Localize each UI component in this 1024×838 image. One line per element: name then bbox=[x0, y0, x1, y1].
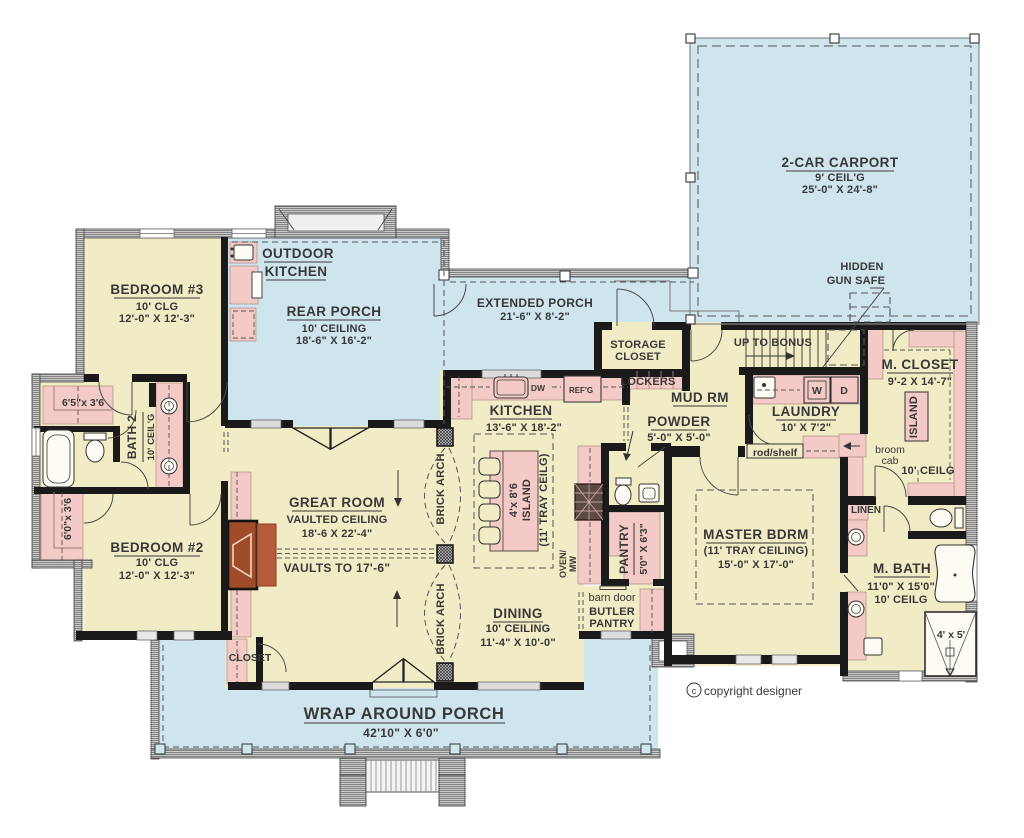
svg-text:CLOSET: CLOSET bbox=[615, 351, 661, 363]
svg-text:OUTDOOR: OUTDOOR bbox=[262, 246, 334, 261]
svg-text:25'-0" X 24'-8": 25'-0" X 24'-8" bbox=[802, 184, 878, 196]
svg-text:(11' TRAY CEILG): (11' TRAY CEILG) bbox=[538, 453, 550, 546]
svg-text:PANTRY: PANTRY bbox=[617, 524, 631, 574]
svg-text:13'-6" X 18'-2": 13'-6" X 18'-2" bbox=[486, 422, 562, 434]
svg-text:4' x 5': 4' x 5' bbox=[937, 629, 965, 641]
svg-text:GREAT ROOM: GREAT ROOM bbox=[289, 495, 385, 510]
svg-text:barn door: barn door bbox=[588, 592, 635, 604]
svg-text:6'0"x 3'6: 6'0"x 3'6 bbox=[62, 498, 74, 540]
svg-text:rod/shelf: rod/shelf bbox=[753, 447, 798, 459]
svg-text:W: W bbox=[812, 385, 822, 397]
svg-text:BUTLER: BUTLER bbox=[589, 606, 635, 618]
svg-text:BATH 2: BATH 2 bbox=[125, 415, 139, 459]
svg-text:M. BATH: M. BATH bbox=[873, 561, 931, 576]
svg-text:GUN SAFE: GUN SAFE bbox=[827, 275, 885, 287]
svg-text:10' CEILING: 10' CEILING bbox=[486, 623, 551, 635]
svg-text:LOCKERS: LOCKERS bbox=[620, 376, 675, 388]
svg-text:10' CEILG: 10' CEILG bbox=[874, 594, 927, 606]
svg-text:10' X 7'2": 10' X 7'2" bbox=[781, 422, 831, 434]
svg-text:REF'G: REF'G bbox=[569, 386, 593, 395]
svg-text:10' CLG: 10' CLG bbox=[136, 301, 179, 313]
svg-text:LAUNDRY: LAUNDRY bbox=[772, 404, 840, 419]
svg-text:9' CEIL'G: 9' CEIL'G bbox=[815, 172, 865, 184]
svg-text:VAULTS TO 17'-6": VAULTS TO 17'-6" bbox=[284, 561, 391, 575]
svg-text:11'0" X 15'0": 11'0" X 15'0" bbox=[867, 581, 935, 593]
svg-text:ISLAND: ISLAND bbox=[521, 479, 533, 521]
svg-text:WRAP AROUND PORCH: WRAP AROUND PORCH bbox=[304, 705, 505, 723]
svg-text:2-CAR CARPORT: 2-CAR CARPORT bbox=[782, 155, 899, 170]
svg-text:10' CEIL'G: 10' CEIL'G bbox=[146, 414, 157, 461]
svg-text:cab: cab bbox=[882, 455, 899, 467]
svg-text:D: D bbox=[840, 385, 848, 397]
svg-text:21'-6" X 8'-2": 21'-6" X 8'-2" bbox=[500, 311, 570, 323]
svg-text:PANTRY: PANTRY bbox=[589, 618, 635, 630]
svg-text:18'-6 X 22'-4": 18'-6 X 22'-4" bbox=[302, 528, 373, 540]
svg-text:POWDER: POWDER bbox=[647, 414, 710, 429]
svg-text:10' CEILG: 10' CEILG bbox=[901, 465, 954, 477]
svg-text:18'-6" X 16'-2": 18'-6" X 16'-2" bbox=[296, 335, 372, 347]
svg-text:EXTENDED PORCH: EXTENDED PORCH bbox=[477, 296, 593, 310]
svg-text:4'x 8'6: 4'x 8'6 bbox=[508, 483, 520, 517]
svg-text:M. CLOSET: M. CLOSET bbox=[881, 357, 958, 372]
svg-text:STORAGE: STORAGE bbox=[610, 339, 666, 351]
svg-text:12'-0" X 12'-3": 12'-0" X 12'-3" bbox=[119, 313, 195, 325]
svg-text:11'-4" X 10'-0": 11'-4" X 10'-0" bbox=[480, 637, 556, 649]
svg-text:42'10" X 6'0": 42'10" X 6'0" bbox=[363, 726, 439, 740]
svg-text:HIDDEN: HIDDEN bbox=[840, 261, 883, 273]
svg-text:REAR PORCH: REAR PORCH bbox=[287, 304, 382, 319]
svg-text:MASTER BDRM: MASTER BDRM bbox=[703, 527, 809, 542]
svg-text:15'-0" X 17'-0": 15'-0" X 17'-0" bbox=[718, 559, 794, 571]
svg-text:copyright designer: copyright designer bbox=[704, 684, 802, 698]
svg-text:KITCHEN: KITCHEN bbox=[490, 403, 553, 418]
svg-text:VAULTED CEILING: VAULTED CEILING bbox=[287, 514, 388, 526]
svg-text:LINEN: LINEN bbox=[851, 505, 881, 516]
svg-text:10' CEILING: 10' CEILING bbox=[302, 323, 367, 335]
svg-text:MW: MW bbox=[568, 556, 578, 572]
svg-text:5'-0" X 5'-0": 5'-0" X 5'-0" bbox=[647, 432, 711, 444]
svg-text:12'-0" X 12'-3": 12'-0" X 12'-3" bbox=[119, 570, 195, 582]
svg-text:CLOSET: CLOSET bbox=[229, 652, 272, 664]
svg-text:6'5"x 3'6: 6'5"x 3'6 bbox=[62, 397, 104, 409]
svg-text:DW: DW bbox=[531, 383, 546, 393]
svg-text:c: c bbox=[692, 686, 697, 696]
svg-text:OVEN/: OVEN/ bbox=[558, 550, 568, 579]
svg-text:ISLAND: ISLAND bbox=[908, 396, 920, 438]
svg-text:9'-2 X 14'-7": 9'-2 X 14'-7" bbox=[888, 376, 952, 388]
svg-text:BEDROOM #2: BEDROOM #2 bbox=[110, 540, 203, 555]
svg-text:KITCHEN: KITCHEN bbox=[265, 264, 328, 279]
svg-text:10' CLG: 10' CLG bbox=[136, 557, 179, 569]
svg-text:5'0" X 6'3": 5'0" X 6'3" bbox=[638, 523, 650, 574]
svg-text:BRICK ARCH: BRICK ARCH bbox=[435, 453, 447, 524]
svg-text:(11' TRAY CEILING): (11' TRAY CEILING) bbox=[704, 545, 809, 557]
svg-text:BEDROOM #3: BEDROOM #3 bbox=[110, 282, 203, 297]
svg-text:MUD RM: MUD RM bbox=[671, 390, 729, 405]
svg-text:DINING: DINING bbox=[493, 606, 543, 621]
svg-text:BRICK ARCH: BRICK ARCH bbox=[435, 583, 447, 654]
svg-text:UP TO BONUS: UP TO BONUS bbox=[734, 337, 812, 349]
